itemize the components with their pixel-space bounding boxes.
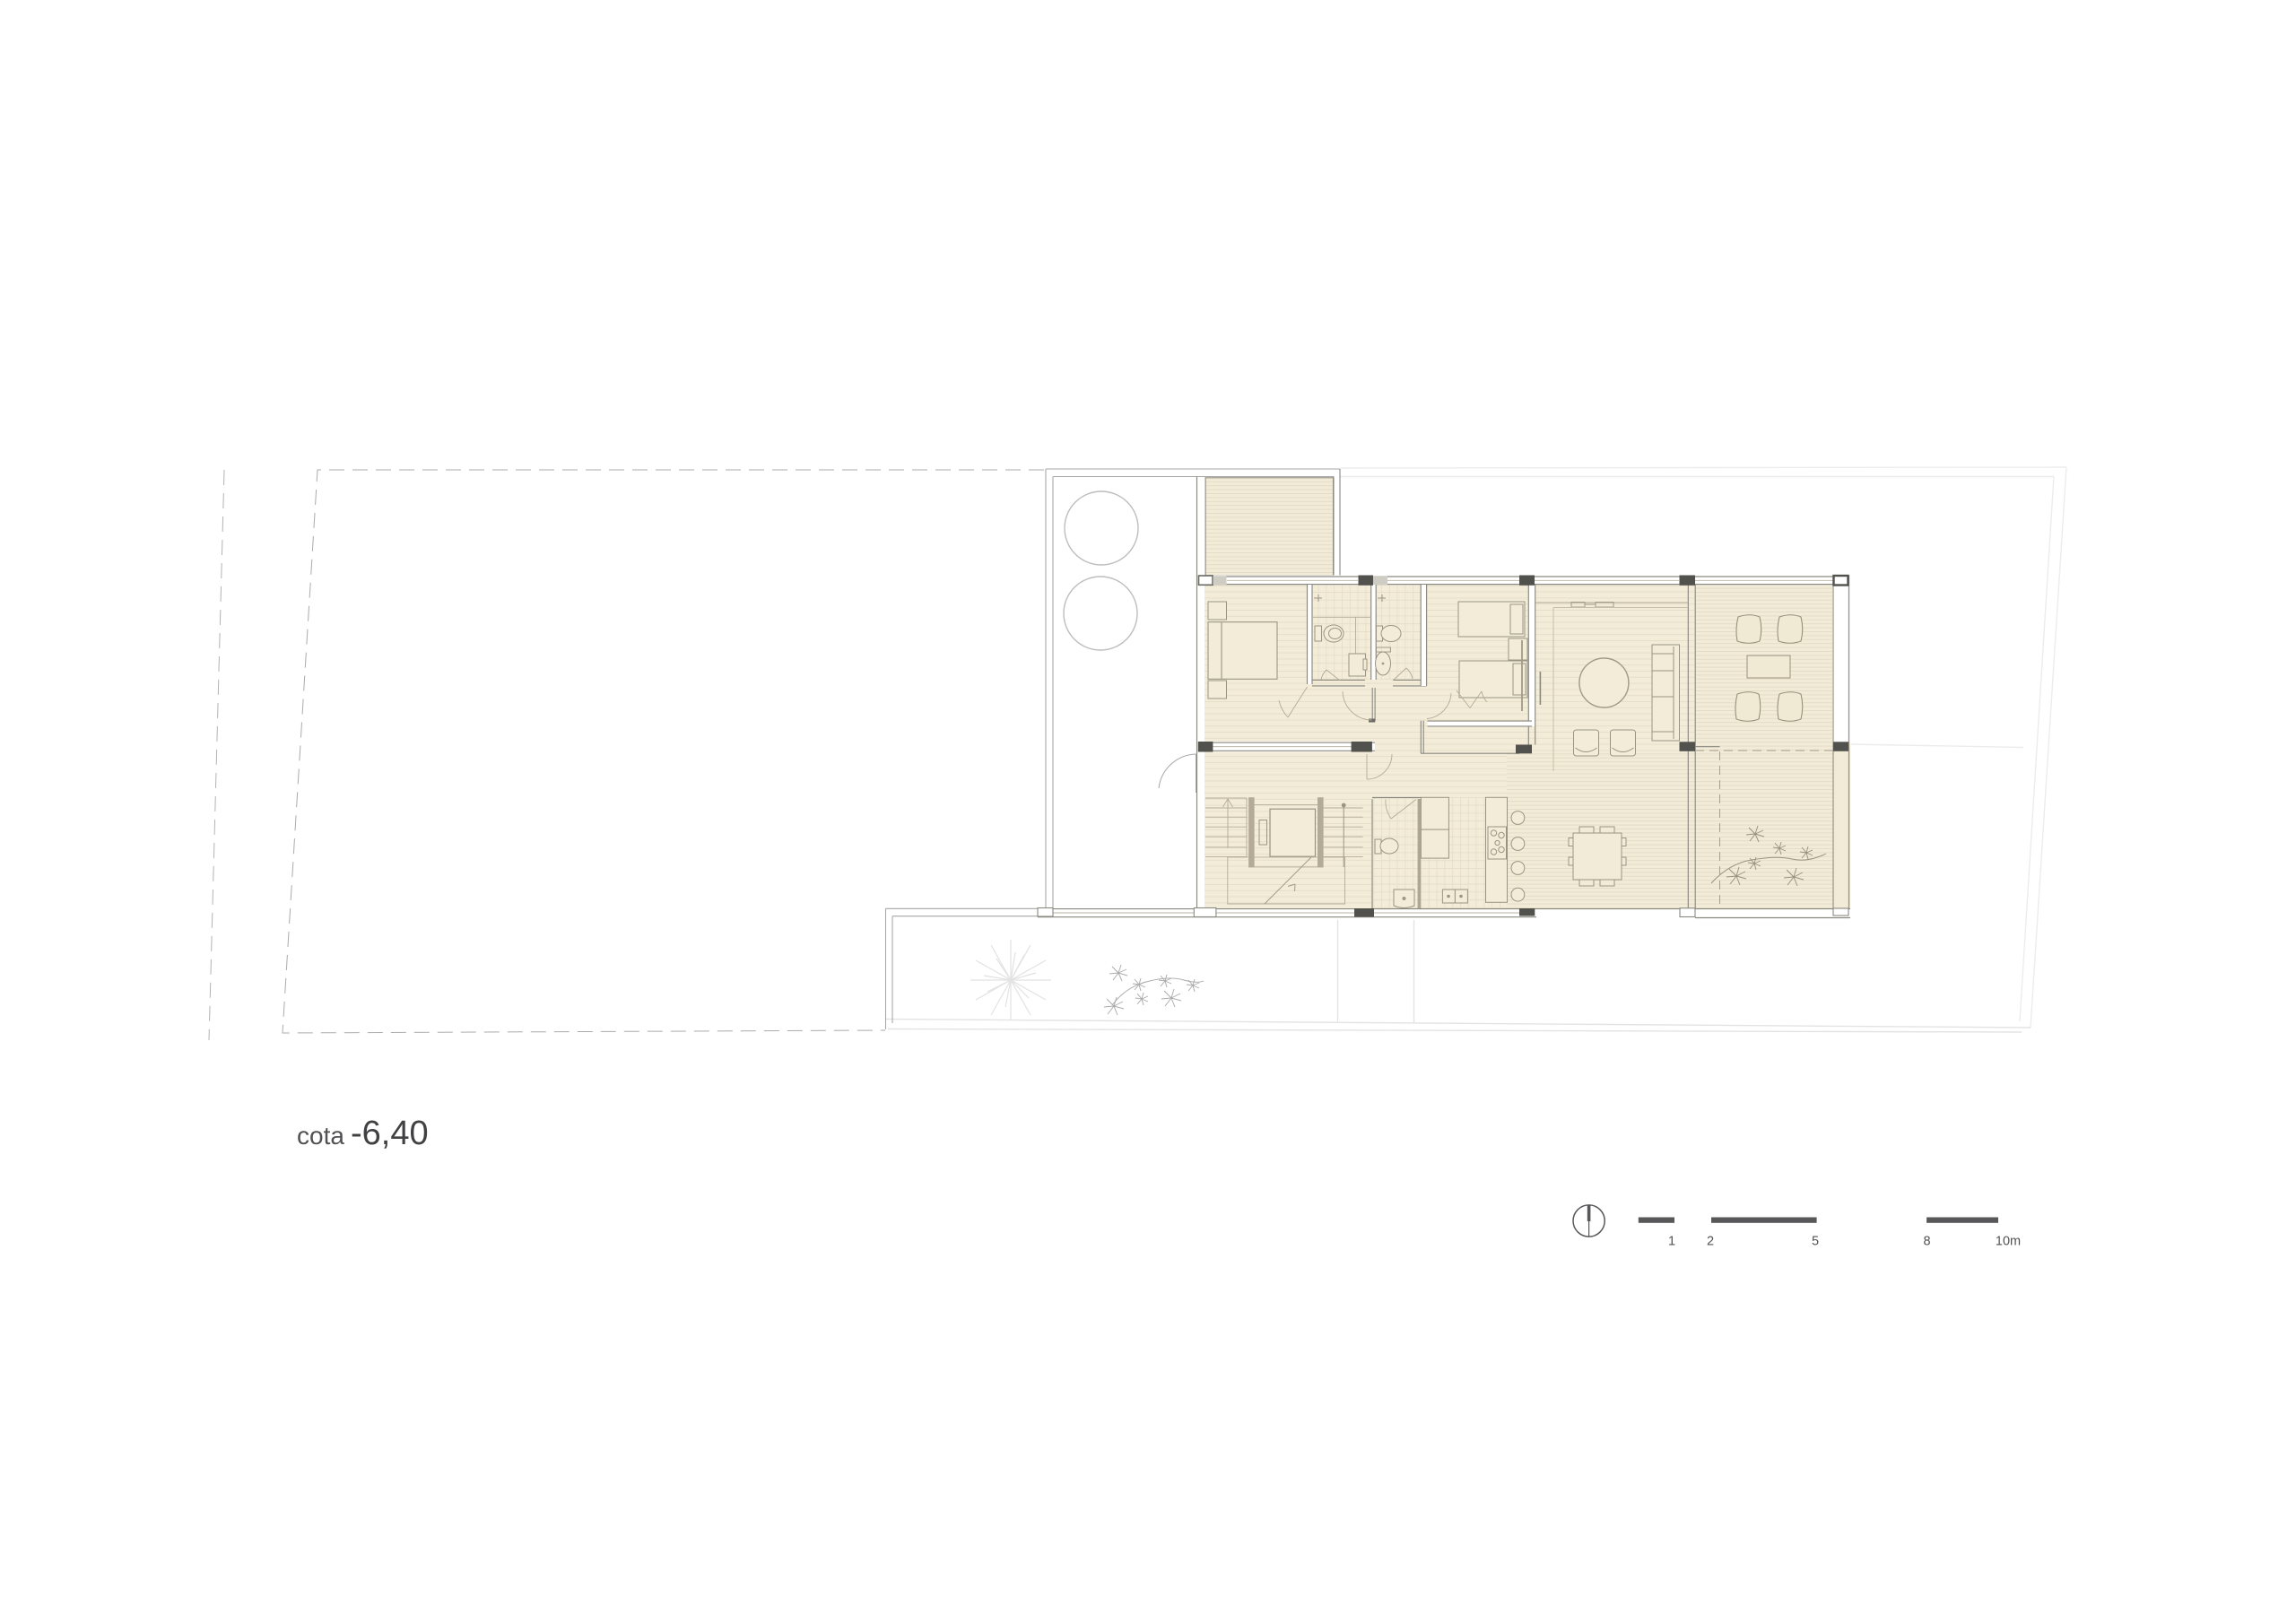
svg-text:8: 8	[1923, 1235, 1930, 1249]
svg-text:5: 5	[1812, 1235, 1819, 1249]
svg-text:2: 2	[1707, 1235, 1714, 1249]
svg-text:cota: cota	[297, 1122, 344, 1150]
svg-text:10m: 10m	[1996, 1235, 2021, 1249]
svg-text:-6,40: -6,40	[351, 1115, 429, 1152]
svg-text:1: 1	[1668, 1235, 1675, 1249]
